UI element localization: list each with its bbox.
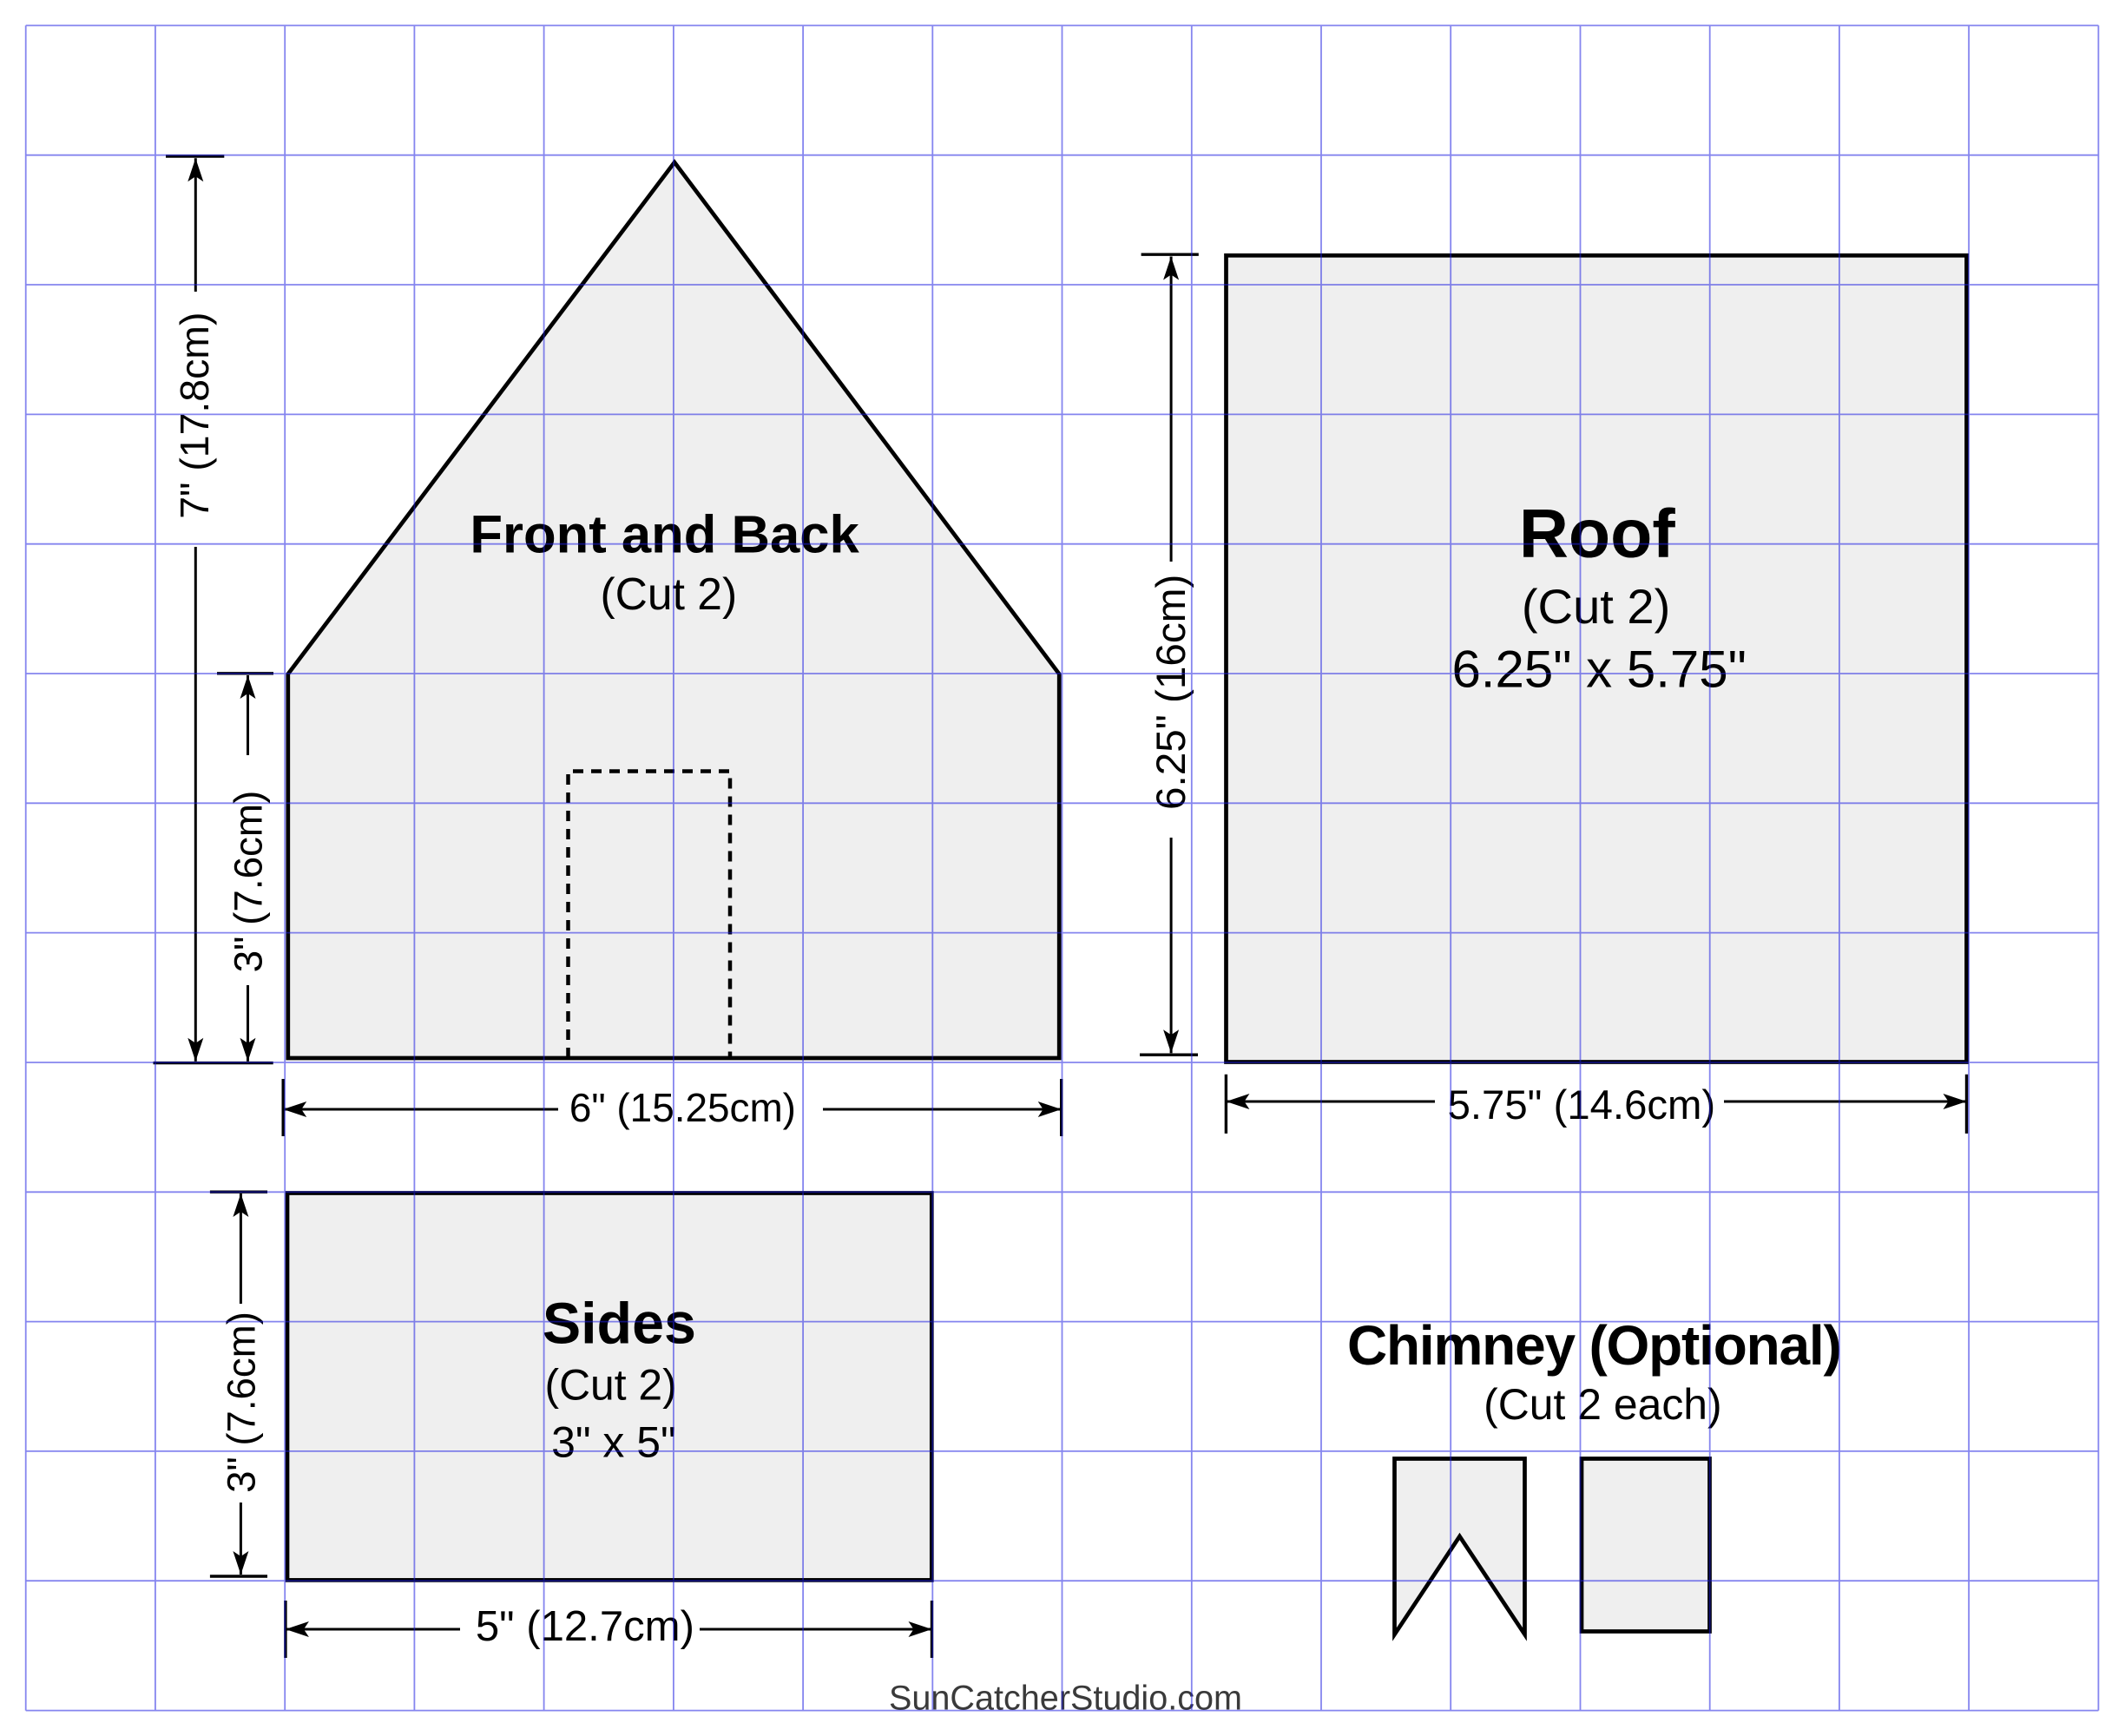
svg-text:6.25" x 5.75": 6.25" x 5.75" [1451,641,1747,699]
svg-text:3" (7.6cm): 3" (7.6cm) [227,791,271,973]
svg-text:Roof: Roof [1519,494,1676,571]
svg-text:Chimney (Optional): Chimney (Optional) [1347,1314,1841,1377]
svg-text:6.25" (16cm): 6.25" (16cm) [1148,575,1194,810]
svg-text:5.75" (14.6cm): 5.75" (14.6cm) [1448,1082,1716,1128]
svg-text:(Cut 2): (Cut 2) [545,1361,677,1410]
svg-text:SunCatcherStudio.com: SunCatcherStudio.com [889,1680,1242,1718]
svg-text:Front and Back: Front and Back [470,504,859,564]
svg-text:3" (7.6cm): 3" (7.6cm) [219,1312,263,1493]
svg-text:3" x 5": 3" x 5" [551,1418,676,1467]
svg-text:5" (12.7cm): 5" (12.7cm) [476,1603,694,1650]
svg-text:7" (17.8cm): 7" (17.8cm) [172,312,217,519]
svg-text:(Cut 2): (Cut 2) [600,569,737,619]
svg-text:(Cut 2 each): (Cut 2 each) [1484,1380,1722,1429]
svg-text:6" (15.25cm): 6" (15.25cm) [569,1085,796,1130]
svg-text:(Cut 2): (Cut 2) [1522,579,1670,634]
